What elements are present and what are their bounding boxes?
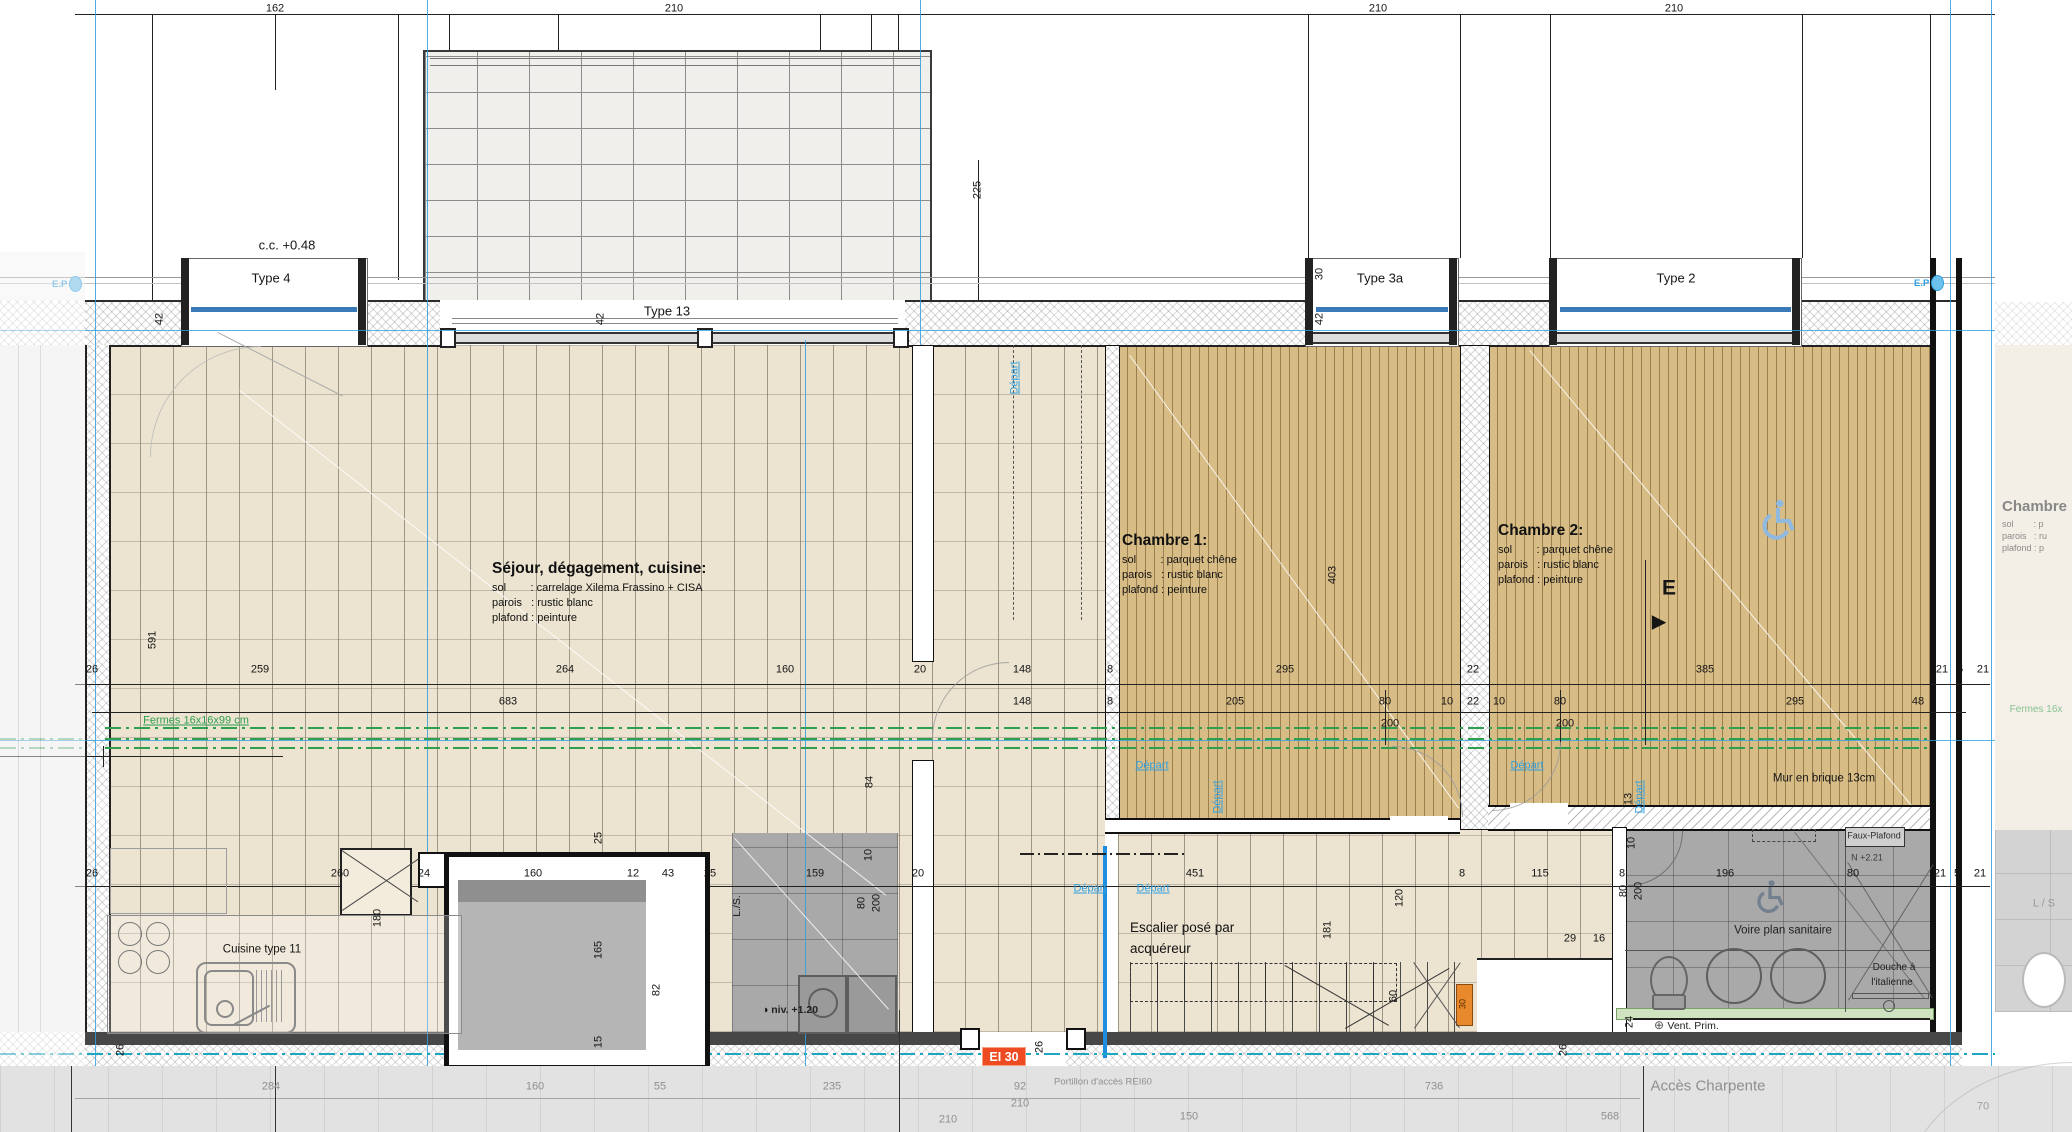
dim-label: 10 bbox=[864, 849, 875, 861]
dim-label: 48 bbox=[1912, 697, 1924, 708]
depart-label: Départ bbox=[1213, 780, 1224, 813]
dim-label: 92 bbox=[1014, 1082, 1026, 1093]
window-type-label: Type 3a bbox=[1357, 272, 1403, 285]
dim-label: 80 bbox=[1554, 697, 1566, 708]
window-type-label: Type 4 bbox=[251, 272, 290, 285]
dim-label: 200 bbox=[1634, 882, 1645, 900]
dim-label: 60 bbox=[1389, 990, 1400, 1002]
dim-label: 115 bbox=[1531, 869, 1549, 880]
floor-plan: EI 30 E.P E.P Vent. Prim. niv. +1.20 Séj… bbox=[0, 0, 2072, 1132]
dim-label: 21 bbox=[1974, 869, 1986, 880]
dim-label: 159 bbox=[806, 869, 824, 880]
dim-label: 26 bbox=[1559, 1044, 1570, 1056]
depart-label: Départ bbox=[1635, 780, 1646, 813]
dim-label: 43 bbox=[662, 869, 674, 880]
dim-label: 20 bbox=[914, 665, 926, 676]
dim-label: 451 bbox=[1186, 869, 1204, 880]
dim-label: 30 bbox=[1315, 268, 1326, 280]
dim-label: 160 bbox=[524, 869, 542, 880]
dim-label: 8 bbox=[1619, 869, 1625, 880]
dim-label: 205 bbox=[1226, 697, 1244, 708]
dim-label: 21 bbox=[1977, 665, 1989, 676]
dim-label: 80 bbox=[1847, 869, 1859, 880]
dim-label: 22 bbox=[1467, 665, 1479, 676]
depart-label: Départ bbox=[1136, 884, 1169, 895]
dim-label: 5 bbox=[1954, 869, 1960, 880]
level-note: N +2.21 bbox=[1851, 854, 1883, 863]
faux-plafond-note: Faux-Plafond bbox=[1847, 832, 1901, 841]
dim-label: 8 bbox=[1107, 697, 1113, 708]
dim-label: 25 bbox=[704, 869, 716, 880]
dim-label: 210 bbox=[1665, 4, 1683, 15]
dim-label: 181 bbox=[1323, 921, 1334, 939]
fermes-note: Fermes 16x16x99 cm bbox=[143, 716, 249, 727]
shower-note: Douche à bbox=[1873, 963, 1916, 973]
dim-label: 295 bbox=[1276, 665, 1294, 676]
dim-label: 30 bbox=[1459, 999, 1468, 1009]
dim-label: 10 bbox=[1493, 697, 1505, 708]
depart-label: Départ bbox=[1010, 361, 1021, 394]
wall-note: Mur en brique 13cm bbox=[1773, 773, 1875, 785]
dim-label: 25 bbox=[594, 832, 605, 844]
dim-label: 80 bbox=[1619, 885, 1630, 897]
dim-label: 225 bbox=[973, 181, 984, 199]
dim-label: 200 bbox=[872, 894, 883, 912]
dim-label: 385 bbox=[1696, 665, 1714, 676]
dim-label: 10 bbox=[1441, 697, 1453, 708]
dim-label: 260 bbox=[331, 869, 349, 880]
sanitary-note: Voire plan sanitaire bbox=[1734, 925, 1832, 937]
direction-arrow-icon: ▶ bbox=[1652, 613, 1667, 632]
dim-label: 26 bbox=[116, 1044, 127, 1056]
dim-label: 42 bbox=[596, 313, 607, 325]
dim-label: 403 bbox=[1328, 566, 1339, 584]
east-label: E bbox=[1662, 578, 1676, 599]
dim-label: 165 bbox=[594, 941, 605, 959]
dim-label: 120 bbox=[1395, 889, 1406, 907]
dim-label: 15 bbox=[594, 1036, 605, 1048]
dim-label: 80 bbox=[857, 897, 868, 909]
dim-label: 235 bbox=[823, 1082, 841, 1093]
dim-label: 210 bbox=[665, 4, 683, 15]
dim-label: 70 bbox=[1977, 1102, 1989, 1113]
dim-label: 295 bbox=[1786, 697, 1804, 708]
kitchen-label: Cuisine type 11 bbox=[223, 944, 301, 956]
dim-label: 196 bbox=[1716, 869, 1734, 880]
dim-label: 210 bbox=[1369, 4, 1387, 15]
ls-label: L / S bbox=[2033, 899, 2055, 910]
dim-label: c.c. +0.48 bbox=[259, 239, 316, 252]
depart-label: Départ bbox=[1135, 761, 1168, 772]
dim-label: 259 bbox=[251, 665, 269, 676]
dim-label: 26 bbox=[86, 869, 98, 880]
dim-label: 591 bbox=[148, 631, 159, 649]
dim-label: 180 bbox=[373, 909, 384, 927]
acces-charpente-label: Accès Charpente bbox=[1650, 1079, 1765, 1094]
dim-label: 5 bbox=[1957, 665, 1963, 676]
dim-label: 21 bbox=[1934, 869, 1946, 880]
dim-label: 16 bbox=[1593, 934, 1605, 945]
dim-label: 162 bbox=[266, 4, 284, 15]
dim-label: 12 bbox=[627, 869, 639, 880]
dim-label: 148 bbox=[1013, 665, 1031, 676]
dim-label: 42 bbox=[1315, 313, 1326, 325]
dim-label: 210 bbox=[1011, 1099, 1029, 1110]
window-type-label: Type 2 bbox=[1656, 272, 1695, 285]
dim-label: 21 bbox=[1936, 665, 1948, 676]
dim-label: 20 bbox=[912, 869, 924, 880]
fermes-note: Fermes 16x bbox=[2010, 705, 2063, 715]
dim-label: 160 bbox=[526, 1082, 544, 1093]
dim-label: 160 bbox=[776, 665, 794, 676]
depart-label: Départ bbox=[1073, 884, 1106, 895]
dim-label: 150 bbox=[1180, 1112, 1198, 1123]
annotations: 162210210210225c.c. +0.48Type 4Type 13Ty… bbox=[0, 0, 2072, 1132]
dim-label: 683 bbox=[499, 697, 517, 708]
depart-label: Départ bbox=[1510, 761, 1543, 772]
dim-label: 200 bbox=[1381, 719, 1399, 730]
portillon-note: Portillon d'accès REI60 bbox=[1054, 1077, 1152, 1087]
dim-label: 82 bbox=[652, 984, 663, 996]
dim-label: 148 bbox=[1013, 697, 1031, 708]
dim-label: 84 bbox=[865, 776, 876, 788]
window-type-label: Type 13 bbox=[644, 305, 690, 318]
dim-label: 264 bbox=[556, 665, 574, 676]
dim-label: 8 bbox=[1459, 869, 1465, 880]
dim-label: 42 bbox=[155, 313, 166, 325]
dim-label: 26 bbox=[1035, 1041, 1046, 1053]
dim-label: 55 bbox=[654, 1082, 666, 1093]
dim-label: 29 bbox=[1564, 934, 1576, 945]
dim-label: 200 bbox=[1556, 719, 1574, 730]
dim-label: 24 bbox=[1625, 1016, 1636, 1028]
dim-label: 26 bbox=[86, 665, 98, 676]
shower-note: l'italienne bbox=[1871, 978, 1912, 988]
dim-label: 568 bbox=[1601, 1112, 1619, 1123]
dim-label: 8 bbox=[1107, 665, 1113, 676]
dim-label: 10 bbox=[1627, 837, 1638, 849]
dim-label: 210 bbox=[939, 1115, 957, 1126]
ls-label: L./S. bbox=[732, 895, 743, 917]
dim-label: 736 bbox=[1425, 1082, 1443, 1093]
dim-label: 284 bbox=[262, 1082, 280, 1093]
dim-label: 24 bbox=[418, 869, 430, 880]
dim-label: 80 bbox=[1379, 697, 1391, 708]
dim-label: 22 bbox=[1467, 697, 1479, 708]
